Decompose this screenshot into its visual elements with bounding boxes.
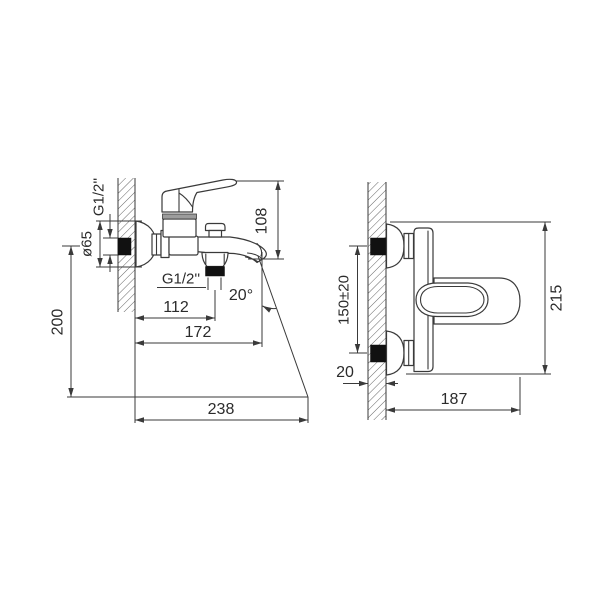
drawing-canvas: G1/2'' ø65 108 200 [0, 0, 600, 600]
wall-flange-bottom [387, 331, 405, 375]
dim-spout-height-label: 108 [254, 208, 271, 235]
side-view: G1/2'' ø65 108 200 [50, 178, 309, 423]
dim-projection: 187 [386, 377, 520, 415]
top-view-wall [368, 182, 386, 420]
dim-stream-angle: 20° [229, 256, 308, 397]
diverter-cap [206, 224, 226, 231]
dim-mount-height-label: 200 [50, 309, 67, 336]
dim-stream-reach-label: 238 [208, 401, 235, 418]
top-view-faucet [387, 224, 521, 375]
lever-handle [162, 179, 237, 212]
dim-stream-angle-label: 20° [229, 287, 253, 304]
top-view: 150±20 215 20 187 [336, 182, 566, 420]
wall-flange-top [387, 224, 405, 268]
dim-spout-reach-label: 172 [185, 324, 212, 341]
side-view-wall [118, 178, 135, 312]
dim-wall-thread-label: G1/2'' [91, 178, 108, 216]
dim-wall-thickness-label: 20 [336, 364, 354, 381]
dim-stream-reach: 238 [135, 312, 308, 423]
shower-thread-black [206, 267, 225, 277]
mixer-body [163, 219, 196, 237]
wall-pipe-section [118, 238, 131, 255]
diverter-stem [209, 231, 222, 238]
dim-shower-thread-label: G1/2'' [162, 271, 200, 288]
lever-handle [416, 283, 488, 317]
dim-inlet-spacing: 150±20 [336, 246, 368, 353]
side-view-faucet [136, 179, 266, 276]
dim-shower-offset: 112 [135, 290, 215, 321]
dim-shower-offset-label: 112 [163, 299, 189, 316]
technical-drawing: G1/2'' ø65 108 200 [0, 0, 600, 600]
wall-hatch [368, 182, 386, 420]
valve-body [169, 236, 198, 255]
wall-pipe-bottom [371, 345, 387, 362]
dim-projection-label: 187 [441, 391, 468, 408]
dim-inlet-spacing-label: 150±20 [336, 275, 353, 325]
dim-mount-height: 200 [50, 246, 309, 397]
water-stream-line [258, 256, 308, 397]
dim-overall-width-label: 215 [549, 285, 566, 312]
wall-pipe-top [371, 238, 387, 255]
dim-flange-diameter-label: ø65 [79, 231, 96, 257]
collar-band [163, 214, 197, 219]
